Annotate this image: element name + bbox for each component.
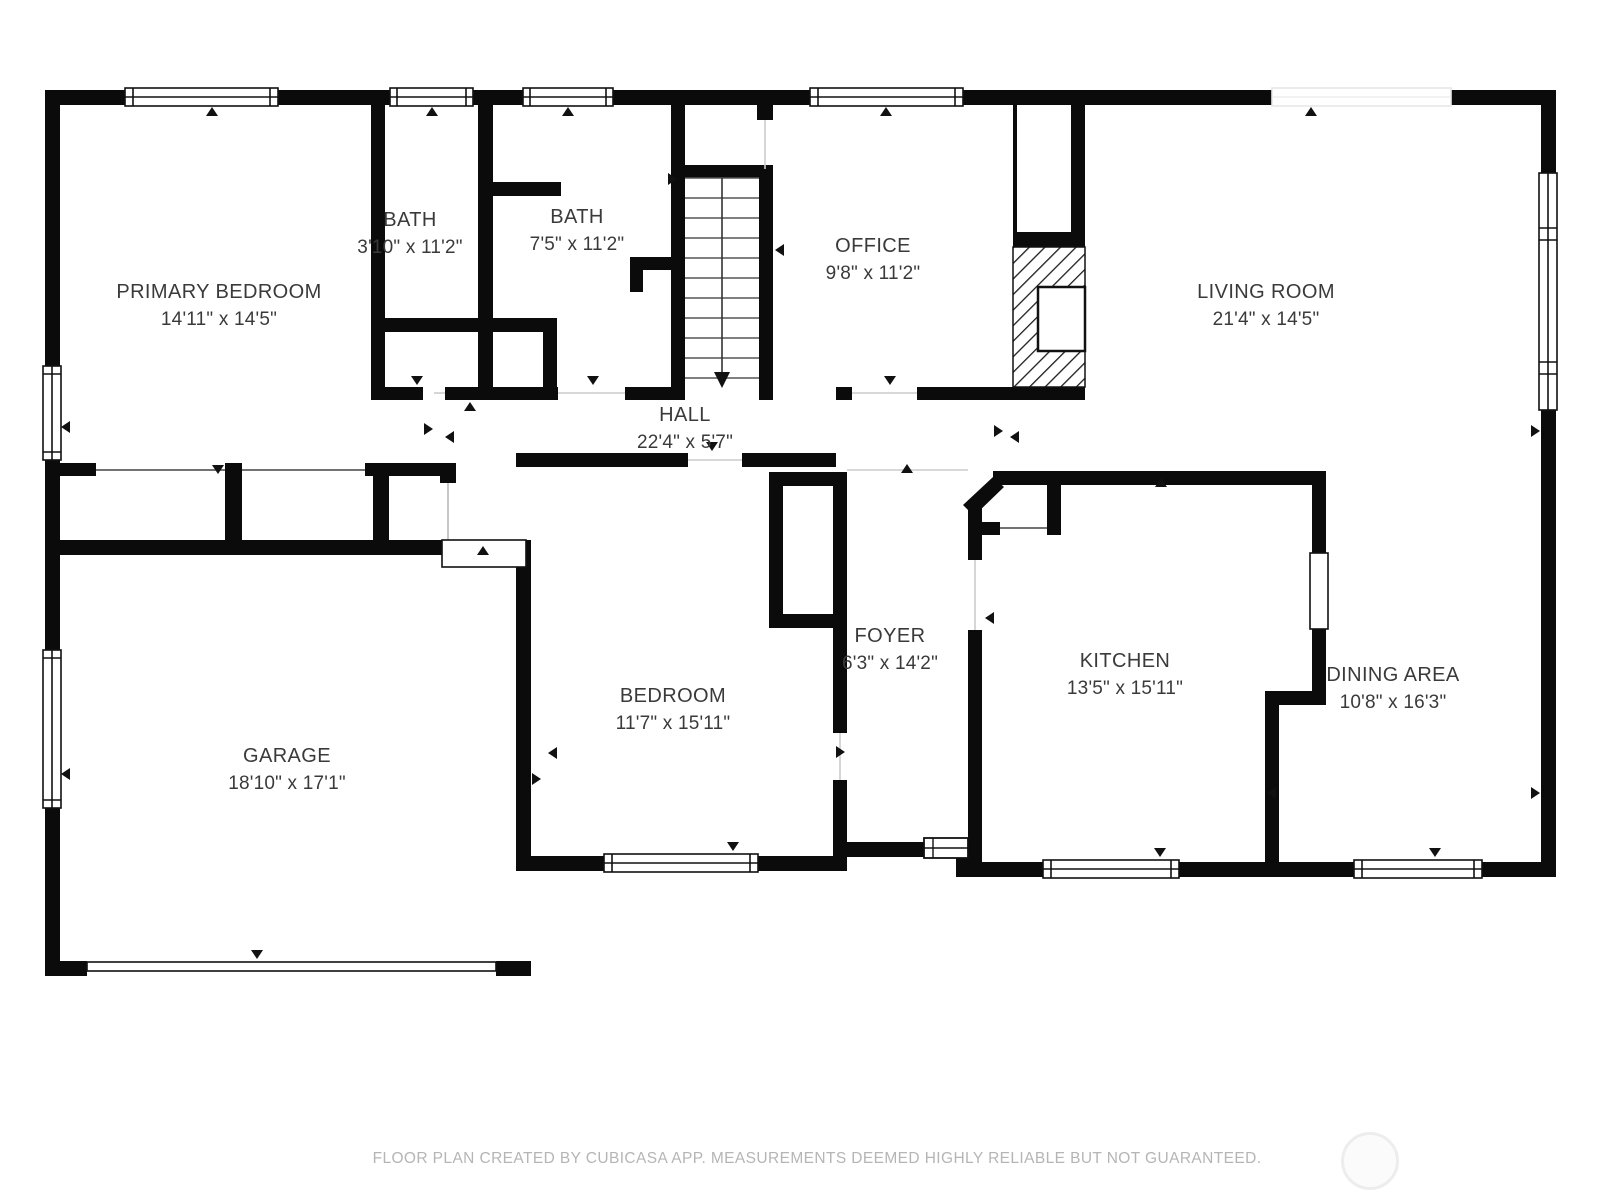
footer-disclaimer: FLOOR PLAN CREATED BY CUBICASA APP. MEAS… (373, 1150, 1262, 1168)
pass-through-opening (1310, 553, 1328, 629)
floor-plan-page: PRIMARY BEDROOM 14'11" x 14'5" BATH 3'10… (0, 0, 1600, 1200)
room-name: PRIMARY BEDROOM (116, 279, 321, 306)
room-dimensions: 11'7" x 15'11" (616, 710, 731, 737)
room-label-dining-area: DINING AREA 10'8" x 16'3" (1326, 662, 1459, 716)
room-name: BEDROOM (616, 683, 731, 710)
room-dimensions: 13'5" x 15'11" (1067, 675, 1183, 702)
room-dimensions: 6'3" x 14'2" (842, 650, 938, 677)
floor-plan-drawing (0, 0, 1600, 1200)
window (1539, 173, 1557, 410)
room-dimensions: 3'10" x 11'2" (357, 234, 462, 261)
room-dimensions: 9'8" x 11'2" (826, 260, 921, 287)
room-label-bath-1: BATH 3'10" x 11'2" (357, 207, 462, 261)
room-label-living-room: LIVING ROOM 21'4" x 14'5" (1197, 279, 1335, 333)
room-name: HALL (637, 402, 733, 429)
room-label-garage: GARAGE 18'10" x 17'1" (228, 743, 346, 797)
room-dimensions: 10'8" x 16'3" (1326, 689, 1459, 716)
staircase (685, 178, 759, 388)
window (1354, 860, 1482, 878)
room-dimensions: 18'10" x 17'1" (228, 770, 346, 797)
room-name: KITCHEN (1067, 648, 1183, 675)
room-name: DINING AREA (1326, 662, 1459, 689)
room-label-hall: HALL 22'4" x 5'7" (637, 402, 733, 456)
stair-direction-arrow (714, 372, 730, 388)
room-label-office: OFFICE 9'8" x 11'2" (826, 233, 921, 287)
room-dimensions: 7'5" x 11'2" (530, 231, 625, 258)
entry-door (924, 838, 968, 858)
fireplace (1013, 247, 1085, 387)
window (523, 88, 613, 106)
window (125, 88, 278, 106)
room-label-bath-2: BATH 7'5" x 11'2" (530, 204, 625, 258)
room-label-primary-bedroom: PRIMARY BEDROOM 14'11" x 14'5" (116, 279, 321, 333)
room-name: LIVING ROOM (1197, 279, 1335, 306)
window (604, 854, 758, 872)
room-dimensions: 14'11" x 14'5" (116, 306, 321, 333)
room-label-foyer: FOYER 6'3" x 14'2" (842, 623, 938, 677)
window (1272, 88, 1451, 106)
room-dimensions: 21'4" x 14'5" (1197, 306, 1335, 333)
watermark-circle (1341, 1132, 1399, 1190)
room-name: BATH (357, 207, 462, 234)
room-name: FOYER (842, 623, 938, 650)
window (43, 650, 61, 808)
exterior-walls (45, 90, 1556, 976)
room-name: GARAGE (228, 743, 346, 770)
room-name: BATH (530, 204, 625, 231)
window (390, 88, 473, 106)
window (43, 366, 61, 460)
garage-door (87, 962, 496, 971)
window (810, 88, 963, 106)
room-label-kitchen: KITCHEN 13'5" x 15'11" (1067, 648, 1183, 702)
firebox (1038, 287, 1085, 351)
room-name: OFFICE (826, 233, 921, 260)
window (1043, 860, 1179, 878)
room-dimensions: 22'4" x 5'7" (637, 429, 733, 456)
room-label-bedroom: BEDROOM 11'7" x 15'11" (616, 683, 731, 737)
